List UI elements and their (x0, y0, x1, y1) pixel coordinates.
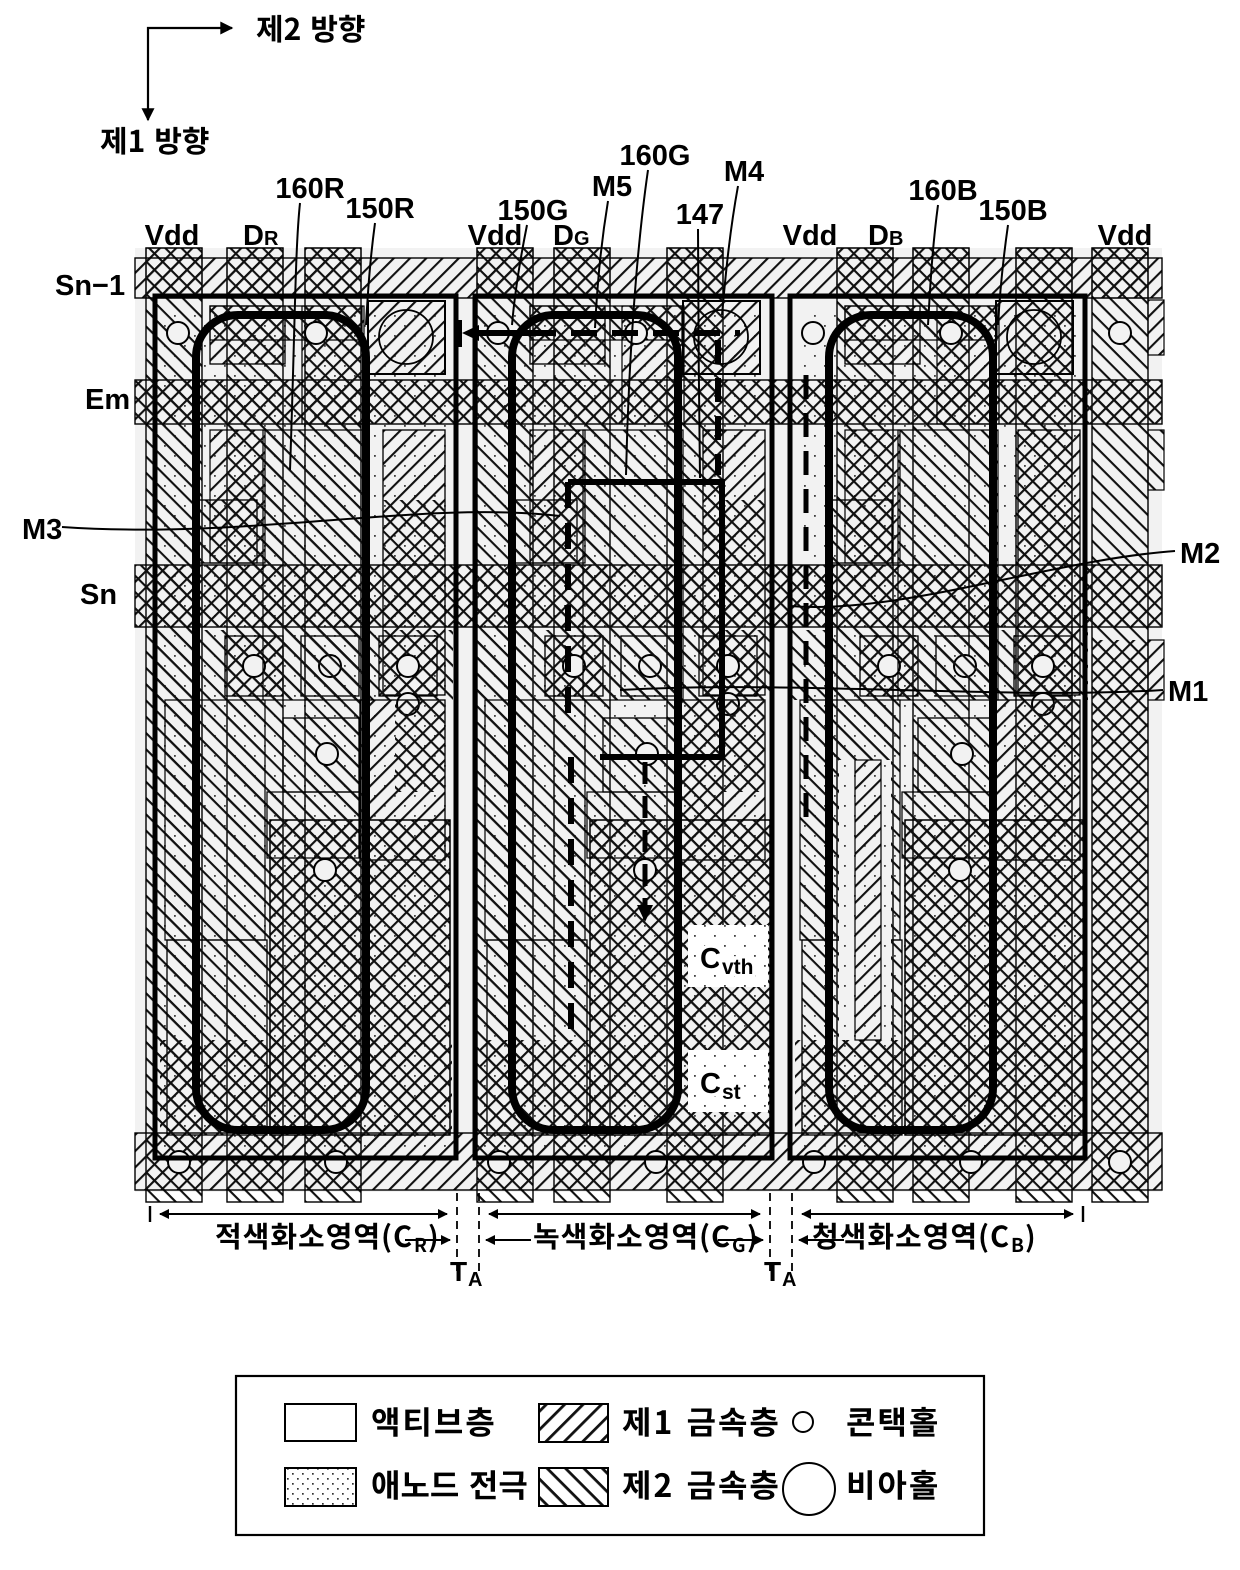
svg-text:150R: 150R (345, 193, 414, 225)
svg-text:R: R (264, 228, 279, 250)
svg-text:st: st (722, 1081, 741, 1104)
svg-text:C: C (700, 1068, 721, 1100)
svg-text:160B: 160B (908, 175, 977, 207)
svg-text:B: B (889, 228, 903, 250)
svg-text:Vdd: Vdd (1098, 220, 1153, 252)
svg-text:M4: M4 (724, 156, 764, 188)
svg-text:M1: M1 (1168, 676, 1208, 708)
svg-text:D: D (553, 220, 574, 252)
svg-text:Em: Em (85, 384, 130, 416)
svg-text:G: G (574, 228, 590, 250)
svg-text:vth: vth (722, 956, 754, 979)
svg-text:A: A (782, 1269, 796, 1291)
svg-text:T: T (764, 1256, 781, 1287)
svg-text:Sn−1: Sn−1 (55, 270, 125, 302)
svg-text:D: D (868, 220, 889, 252)
svg-text:150B: 150B (978, 195, 1047, 227)
svg-text:160R: 160R (275, 173, 344, 205)
svg-text:Vdd: Vdd (783, 220, 838, 252)
svg-text:T: T (450, 1256, 467, 1287)
svg-text:D: D (243, 220, 264, 252)
svg-text:M2: M2 (1180, 538, 1220, 570)
svg-text:A: A (468, 1269, 482, 1291)
svg-text:C: C (700, 943, 721, 975)
svg-text:160G: 160G (620, 140, 691, 172)
svg-text:Sn: Sn (80, 579, 117, 611)
svg-text:Vdd: Vdd (145, 220, 200, 252)
svg-text:M5: M5 (592, 171, 632, 203)
svg-text:147: 147 (676, 199, 724, 231)
svg-text:Vdd: Vdd (468, 220, 523, 252)
svg-text:M3: M3 (22, 514, 62, 546)
